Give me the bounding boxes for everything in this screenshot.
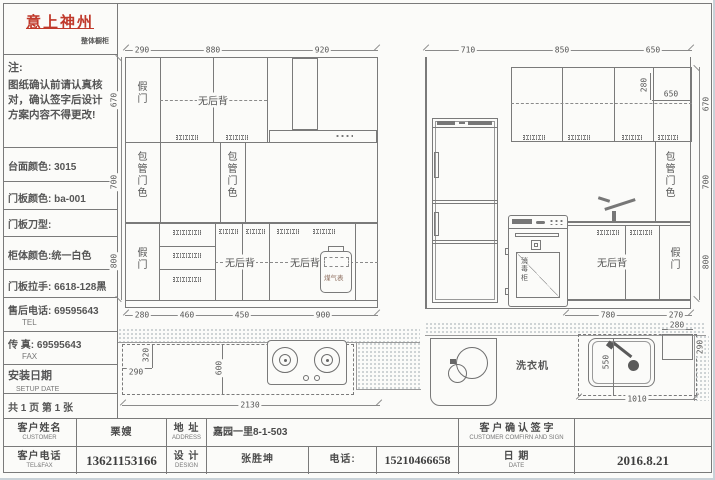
- dim-label: 850: [553, 46, 571, 55]
- sink-dim-line: [613, 338, 614, 396]
- fake-door-label: 假门: [669, 248, 682, 272]
- faucet-plan-icon: [628, 360, 639, 371]
- design-label: 设 计: [174, 452, 200, 462]
- customer-label: 客户姓名: [18, 424, 62, 434]
- dim-label: 460: [178, 311, 196, 320]
- customer-sub: CUSTOMER: [22, 435, 56, 441]
- washer-label: 洗衣机: [516, 357, 549, 372]
- sterilizer-panel-line: [508, 228, 568, 229]
- line: [245, 142, 246, 222]
- tel-value-cell: 13621153166: [77, 446, 167, 474]
- right-wall-cabinets: [511, 67, 692, 142]
- door-handle: [226, 135, 248, 140]
- pipe-box-label: 包管门色: [226, 152, 239, 200]
- sterilizer-hinge: [505, 248, 509, 255]
- fax-sub: FAX: [8, 352, 37, 361]
- service-tel-text: 售后电话: 69595643: [8, 306, 99, 317]
- signature-cell: [575, 419, 711, 446]
- date-value-cell: 2016.8.21: [575, 446, 711, 474]
- logo-cell: 意上神州 整体橱柜: [3, 3, 117, 55]
- design-label-cell: 设 计 DESIGN: [167, 446, 207, 474]
- spec-pages: 共 1 页 第 1 张: [3, 394, 117, 418]
- spec-fax: 传 真: 69595643 FAX: [3, 332, 117, 365]
- dim-label: 900: [314, 311, 332, 320]
- no-back-label: 无后背: [596, 255, 628, 270]
- fridge-divider: [432, 243, 498, 244]
- toe-kick-line: [125, 300, 378, 301]
- dim-label: 800: [110, 252, 119, 270]
- left-elev-bottom-dimline: [125, 315, 378, 316]
- door-handle: [568, 135, 590, 140]
- spec-service-tel: 售后电话: 69595643 TEL: [3, 298, 117, 332]
- fake-door-label: 假门: [136, 248, 149, 272]
- fridge-divider: [432, 240, 498, 241]
- note-cell: 注: 图纸确认前请认真核对，确认签字后设计方案内容不得更改!: [3, 55, 117, 148]
- pipe-box-label: 包管门色: [136, 152, 149, 200]
- customer-label-cell: 客户姓名 CUSTOMER: [3, 419, 77, 446]
- dim-label: 700: [702, 173, 711, 191]
- left-elev-side-dimline: [121, 57, 122, 300]
- design-value-cell: 张胜坤: [207, 446, 309, 474]
- line: [655, 142, 656, 222]
- drawer-handle: [173, 253, 201, 258]
- no-back-label: 无后背: [224, 255, 256, 270]
- title-block: 客户姓名 CUSTOMER 栗嫂 地 址 ADDRESS 嘉园一里8-1-503…: [3, 418, 711, 473]
- fridge-handle: [434, 212, 439, 236]
- door-handle: [277, 229, 299, 234]
- design-value: 张胜坤: [241, 455, 274, 465]
- hood-chimney: [292, 58, 318, 130]
- dim-label: 780: [599, 311, 617, 320]
- dim-label: 270: [667, 311, 685, 320]
- note-title: 注:: [8, 59, 112, 75]
- phone-value-cell: 15210466658: [377, 446, 459, 474]
- tel-label-cell: 客户电话 TEL&FAX: [3, 446, 77, 474]
- confirm-label-cell: 客 户 确 认 签 字 CUSTOMER COMFIRN AND SIGN: [459, 419, 575, 446]
- note-body: 图纸确认前请认真核对，确认签字后设计方案内容不得更改!: [8, 78, 112, 124]
- tel-sub: TEL&FAX: [26, 463, 52, 469]
- dim-label: 600: [215, 359, 224, 377]
- dim-label: 280: [668, 321, 686, 330]
- floor-line: [425, 308, 691, 309]
- spec-door-profile: 门板刀型:: [3, 210, 117, 237]
- faucet-icon: [612, 211, 616, 221]
- address-value: 嘉园一里8-1-503: [213, 428, 287, 438]
- right-elev-side-dimline: [699, 67, 700, 300]
- door-handle: [630, 230, 652, 235]
- washer-drum-small: [448, 364, 467, 383]
- sterilizer-control: [512, 219, 532, 224]
- fridge-panel-line: [432, 127, 498, 128]
- fridge-control: [468, 121, 492, 125]
- dim-label: 550: [602, 353, 611, 371]
- logo-subtitle: 整体橱柜: [3, 36, 117, 46]
- customer-value-cell: 栗嫂: [77, 419, 167, 446]
- toe-kick-line: [565, 300, 691, 301]
- phone-label-cell: 电话:: [309, 446, 377, 474]
- wall-hatch: [356, 342, 421, 390]
- line: [220, 142, 221, 222]
- hob-knob: [303, 375, 309, 381]
- dim-label: 450: [233, 311, 251, 320]
- setup-sub: SETUP DATE: [8, 386, 59, 393]
- drawer-handle: [173, 230, 201, 235]
- no-back-label: 无后背: [289, 255, 321, 270]
- spec-countertop: 台面颜色: 3015: [3, 148, 117, 182]
- dim-label: 880: [204, 46, 222, 55]
- duct-box: [662, 334, 693, 360]
- date-label: 日 期: [504, 452, 530, 462]
- fridge-divider: [432, 200, 498, 201]
- dim-label: 650: [662, 90, 680, 99]
- dim-label: 710: [459, 46, 477, 55]
- drawer-line: [159, 246, 215, 247]
- sterilizer-buttons: [549, 219, 564, 225]
- fake-door-label: 假门: [136, 82, 149, 106]
- line: [653, 67, 654, 142]
- design-sub: DESIGN: [175, 463, 198, 469]
- fridge-control: [459, 122, 465, 124]
- pipe-box-label: 包管门色: [664, 152, 677, 200]
- customer-value: 栗嫂: [111, 428, 133, 438]
- fridge-divider: [432, 203, 498, 204]
- dim-label: 920: [313, 46, 331, 55]
- door-handle: [658, 135, 678, 140]
- dim-label: 670: [702, 95, 711, 113]
- hob-knob: [314, 375, 320, 381]
- dim-label: 290: [133, 46, 151, 55]
- address-sub: ADDRESS: [172, 435, 201, 441]
- dim-label: 650: [644, 46, 662, 55]
- confirm-sub: CUSTOMER COMFIRN AND SIGN: [469, 435, 563, 441]
- dim-label: 290: [696, 338, 705, 356]
- sidebar: 意上神州 整体橱柜 注: 图纸确认前请认真核对，确认签字后设计方案内容不得更改!…: [3, 3, 118, 418]
- date-sub: DATE: [509, 463, 525, 469]
- door-handle: [219, 229, 238, 234]
- drawing-sheet: 意上神州 整体橱柜 注: 图纸确认前请认真核对，确认签字后设计方案内容不得更改!…: [0, 0, 715, 480]
- no-back-dashline: [511, 103, 692, 104]
- sterilizer-icon-inner: [534, 243, 538, 247]
- dim-label: 670: [110, 91, 119, 109]
- fridge-handle: [434, 152, 439, 178]
- line: [562, 67, 563, 142]
- line: [160, 142, 161, 222]
- confirm-label: 客 户 确 认 签 字: [480, 424, 554, 434]
- spec-setup: 安装日期 SETUP DATE: [3, 365, 117, 394]
- sterilizer-control: [536, 221, 545, 224]
- address-label-cell: 地 址 ADDRESS: [167, 419, 207, 446]
- address-value-cell: 嘉园一里8-1-503: [207, 419, 459, 446]
- fax-text: 传 真: 69595643: [8, 340, 81, 351]
- line: [267, 57, 268, 142]
- dim-label: 280: [133, 311, 151, 320]
- dim-label: 1010: [625, 395, 648, 404]
- gas-meter-window: [324, 257, 349, 267]
- refrigerator-inner: [435, 121, 495, 300]
- corner-dim-line: [652, 100, 690, 101]
- door-handle: [523, 135, 545, 140]
- washer-mark: [450, 359, 456, 364]
- dim-label: 280: [640, 76, 649, 94]
- logo-text: 意上神州: [3, 11, 117, 32]
- line: [659, 225, 660, 300]
- spec-handle: 门板拉手: 6618-128黑: [3, 270, 117, 298]
- spec-door-color: 门板颜色: ba-001: [3, 182, 117, 210]
- line: [159, 224, 160, 300]
- burner-center: [326, 359, 329, 362]
- fridge-control: [437, 121, 455, 125]
- setup-text: 安装日期: [8, 370, 52, 382]
- counter-line: [125, 222, 378, 224]
- address-label: 地 址: [174, 424, 200, 434]
- door-handle: [246, 229, 265, 234]
- hood-buttons: [335, 134, 353, 138]
- gas-meter-top: [328, 246, 344, 252]
- phone-label: 电话:: [329, 455, 355, 465]
- sterilizer-shelf: [515, 233, 559, 237]
- line: [614, 67, 615, 142]
- drawer-handle: [173, 277, 201, 282]
- door-handle: [597, 230, 619, 235]
- dim-label: 2130: [238, 401, 261, 410]
- dim-label: 320: [142, 346, 151, 364]
- gas-meter-label: 煤气表: [324, 272, 344, 282]
- sterilizer-hinge: [505, 288, 509, 295]
- sterilizer-label: 消毒柜: [520, 258, 529, 283]
- left-elev-top-dimline: [125, 50, 378, 51]
- dim-label: 290: [127, 368, 145, 377]
- dim-label: 700: [110, 173, 119, 191]
- service-tel-sub: TEL: [8, 318, 37, 327]
- dim-label: 800: [702, 253, 711, 271]
- date-label-cell: 日 期 DATE: [459, 446, 575, 474]
- corner-dim-line: [650, 73, 651, 100]
- door-handle: [313, 229, 335, 234]
- door-handle: [622, 135, 642, 140]
- date-value: 2016.8.21: [617, 454, 669, 467]
- spec-cabinet-color: 柜体颜色:统一白色: [3, 237, 117, 270]
- burner-center: [284, 359, 287, 362]
- no-back-label: 无后背: [197, 93, 229, 108]
- wall-edge: [425, 57, 427, 308]
- hood-body: [269, 130, 377, 143]
- drawer-line: [159, 269, 215, 270]
- tel-value: 13621153166: [86, 454, 157, 467]
- phone-value: 15210466658: [385, 454, 451, 466]
- tel-label: 客户电话: [18, 452, 62, 462]
- door-handle: [176, 135, 198, 140]
- corner-notch-line: [152, 344, 153, 368]
